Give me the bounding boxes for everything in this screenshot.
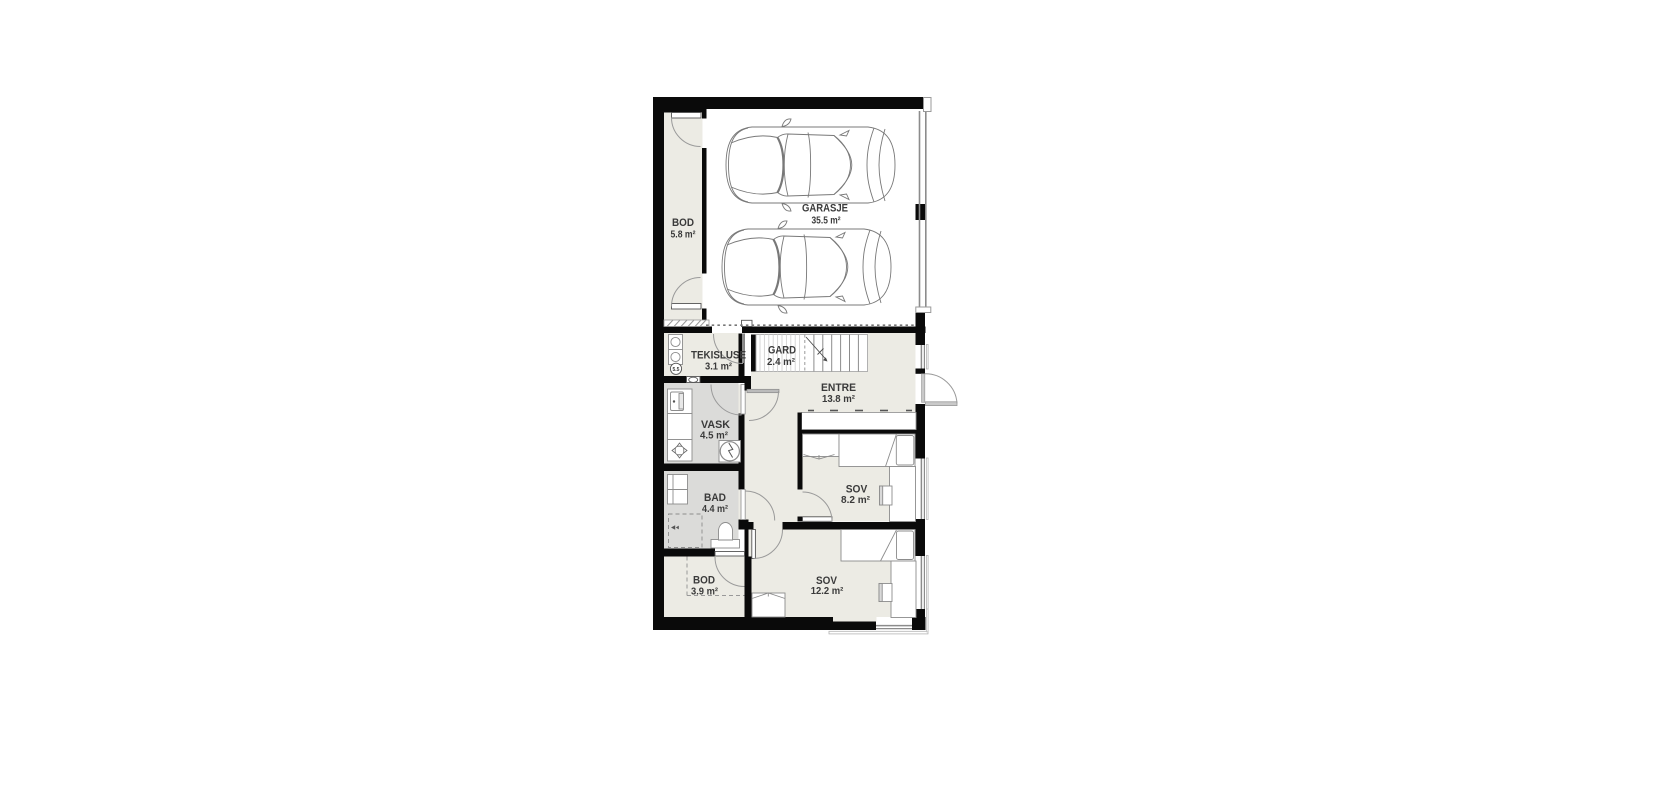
svg-text:5.5: 5.5: [673, 367, 680, 373]
svg-text:3.1 m²: 3.1 m²: [705, 362, 733, 373]
svg-text:12.2 m²: 12.2 m²: [811, 586, 844, 597]
svg-text:3.9 m²: 3.9 m²: [691, 587, 719, 598]
svg-text:ENTRE: ENTRE: [821, 382, 856, 394]
svg-text:GARASJE: GARASJE: [802, 203, 848, 215]
svg-text:SOV: SOV: [816, 575, 838, 587]
svg-text:BOD: BOD: [693, 575, 715, 587]
svg-text:4.4 m²: 4.4 m²: [702, 504, 729, 515]
svg-text:GARD: GARD: [768, 345, 796, 357]
svg-text:2.4 m²: 2.4 m²: [767, 357, 796, 368]
svg-text:4.5 m²: 4.5 m²: [700, 431, 729, 442]
svg-text:8.2 m²: 8.2 m²: [841, 495, 871, 506]
svg-text:BAD: BAD: [704, 492, 726, 504]
svg-text:35.5 m²: 35.5 m²: [812, 216, 842, 227]
svg-text:13.8 m²: 13.8 m²: [822, 394, 856, 405]
svg-text:BOD: BOD: [672, 217, 694, 229]
svg-text:5.8 m²: 5.8 m²: [671, 230, 697, 241]
svg-text:VASK: VASK: [701, 419, 730, 431]
svg-text:TEKISLUSE: TEKISLUSE: [691, 350, 746, 362]
svg-text:SOV: SOV: [846, 484, 868, 496]
